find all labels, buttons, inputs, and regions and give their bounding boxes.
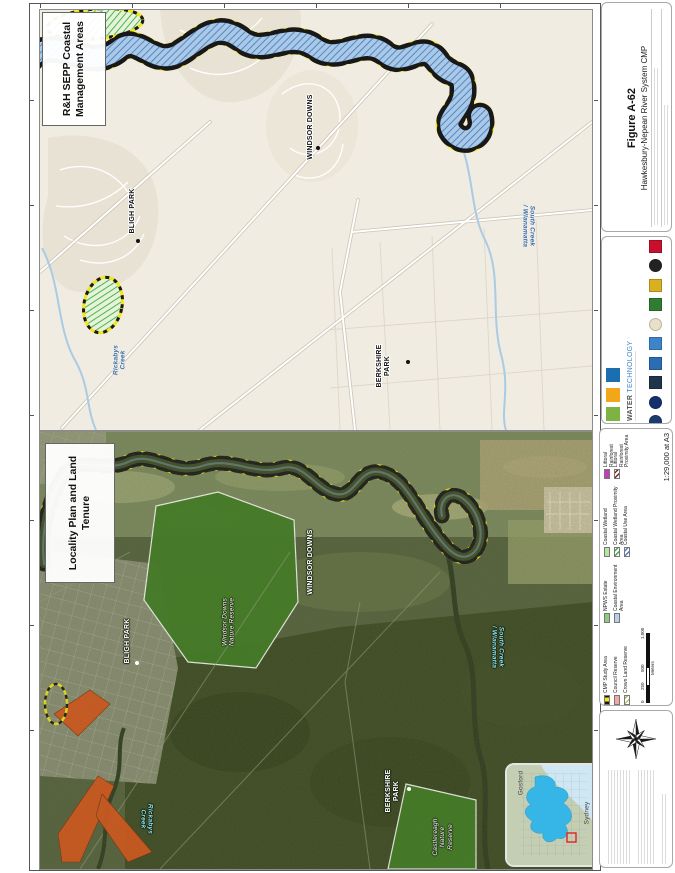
- littoral-rainforest-swatch: [604, 469, 610, 479]
- figure-number: Figure A-62: [626, 88, 638, 148]
- label-windsor-downs: WINDSOR DOWNS: [307, 529, 315, 594]
- partner-logos-row: [649, 240, 667, 424]
- legend-item-coastal-use-area: Coastal Use Area: [624, 481, 630, 557]
- wt-logo-green-square: [606, 407, 620, 421]
- disclaimer-text-block: [638, 770, 656, 864]
- partner-logo-5-icon: [649, 337, 662, 350]
- partner-logo-7-icon: [649, 298, 662, 311]
- graticule-ticks-top: [40, 4, 592, 8]
- partner-logo-1-icon: [649, 415, 662, 424]
- town-dot: [407, 787, 411, 791]
- crown-land-reserve-swatch: [624, 695, 630, 705]
- north-arrow-compass: [614, 717, 658, 761]
- label-windsor-downs: WINDSOR DOWNS: [307, 94, 315, 159]
- scale-ratio-text: 1:29,000 at A3: [662, 433, 671, 481]
- label-castlereagh-nature-reserve: Castlereagh Nature Reserve: [432, 813, 454, 861]
- label-south-creek: South Creek / Wianamatta: [521, 204, 536, 248]
- bottom-map-locality-plan-land-tenure: Locality Plan and Land Tenure BLIGH PARK…: [39, 431, 593, 870]
- label-berkshire-park: BERKSHIRE PARK: [385, 766, 401, 816]
- coastal-use-area-swatch: [624, 547, 630, 557]
- town-dot: [406, 360, 410, 364]
- partner-logo-4-icon: [649, 357, 662, 370]
- legend-item-coastal-wetland: Coastal Wetland: [604, 481, 610, 557]
- label-rickabys-creek: Rickabys Creek: [139, 799, 154, 839]
- legend-item-littoral-rainforest-proximity-area: Littoral Rainforest Proximity Area: [614, 431, 631, 479]
- legend-box: CMP Study Area Council Reserve Crown Lan…: [599, 428, 673, 706]
- council-reserve-swatch: [614, 695, 620, 705]
- inset-locality-map: Gosford Sydney: [505, 763, 593, 867]
- disclaimer-text-block: [608, 770, 632, 864]
- imagery-credit-text: [662, 794, 668, 864]
- inset-label-sydney: Sydney: [583, 802, 590, 825]
- label-berkshire-park: BERKSHIRE PARK: [376, 341, 392, 391]
- scale-bar: 0 250 500 1,000 Meters: [640, 613, 655, 703]
- top-map-rh-sepp-coastal-management-areas: R&H SEPP Coastal Management Areas WINDSO…: [39, 9, 593, 431]
- legend-item-coastal-environment-area: Coastal Environment Area: [614, 561, 625, 623]
- wt-logo-word-water: WATER: [627, 395, 634, 421]
- legend-item-crown-land-reserve: Crown Land Reserve: [624, 627, 630, 705]
- wt-logo-blue-square: [606, 368, 620, 382]
- legend-item-council-reserve: Council Reserve: [614, 627, 620, 705]
- partner-logo-6-icon: [649, 318, 662, 331]
- npws-estate-swatch: [604, 613, 610, 623]
- partner-logo-9-icon: [649, 259, 662, 272]
- graticule-ticks-right: [594, 100, 598, 800]
- label-south-creek: South Creek / Wianamatta: [490, 625, 505, 669]
- legend-item-npws-estate: NPWS Estate: [604, 561, 610, 623]
- bottom-map-title: Locality Plan and Land Tenure: [45, 443, 115, 583]
- label-bligh-park: BLIGH PARK: [129, 188, 137, 233]
- figure-title: Hawkesbury-Nepean River System CMP: [640, 46, 649, 191]
- notes-box: [599, 710, 673, 868]
- partner-logo-3-icon: [649, 376, 662, 389]
- coastal-wetland-proximity-swatch: [614, 547, 620, 557]
- partner-logo-8-icon: [649, 279, 662, 292]
- coastal-environment-area-swatch: [614, 613, 620, 623]
- coastal-wetland-swatch: [604, 547, 610, 557]
- legend-item-cmp-study-area: CMP Study Area: [604, 627, 610, 705]
- town-dot: [136, 239, 140, 243]
- figure-page: R&H SEPP Coastal Management Areas WINDSO…: [0, 0, 675, 873]
- logos-box: WATER TECHNOLOGY: [601, 236, 672, 424]
- partner-logo-2-icon: [649, 396, 662, 409]
- label-rickabys-creek: Rickabys Creek: [113, 342, 128, 378]
- label-bligh-park: BLIGH PARK: [124, 618, 132, 663]
- town-dot: [316, 146, 320, 150]
- town-dot: [135, 661, 139, 665]
- graticule-ticks-left: [30, 100, 34, 800]
- bottom-map-title-box: Locality Plan and Land Tenure: [45, 443, 115, 583]
- littoral-rainforest-proximity-swatch: [614, 469, 620, 479]
- top-map-title-box: R&H SEPP Coastal Management Areas: [42, 12, 106, 126]
- wt-logo-word-technology: TECHNOLOGY: [627, 341, 634, 393]
- partner-logo-10-icon: [649, 240, 662, 253]
- inset-label-gosford: Gosford: [517, 771, 524, 796]
- wt-logo-amber-square: [606, 388, 620, 402]
- water-technology-logo: WATER TECHNOLOGY: [606, 335, 638, 421]
- label-windsor-downs-nature-reserve: Windsor Downs Nature Reserve: [222, 594, 237, 650]
- figure-fine-print: [651, 9, 671, 227]
- cmp-study-area-swatch: [604, 695, 610, 705]
- figure-title-box: Figure A-62 Hawkesbury-Nepean River Syst…: [601, 2, 672, 232]
- top-map-title: R&H SEPP Coastal Management Areas: [42, 12, 106, 126]
